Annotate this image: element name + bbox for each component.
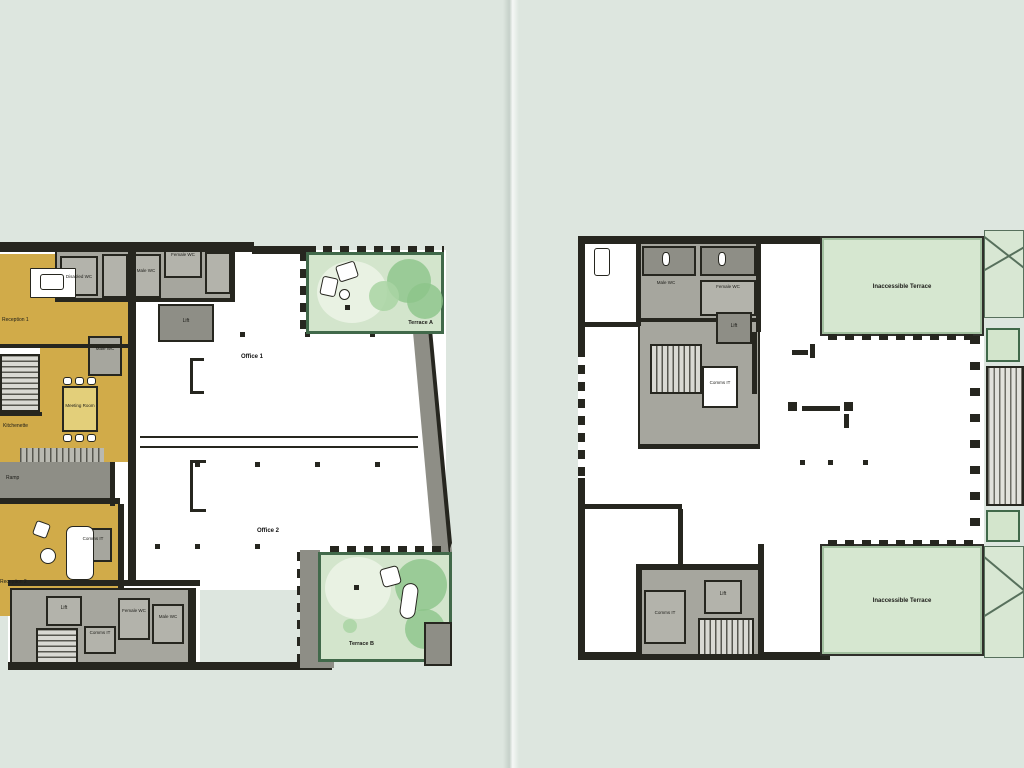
room-label: Kitchenette <box>3 424 28 430</box>
inaccessible-terrace-top: Inaccessible Terrace <box>820 236 984 336</box>
wall <box>230 250 235 300</box>
room-label: Comms IT <box>84 630 116 635</box>
atrium-roof <box>984 546 1024 658</box>
column-dot <box>195 462 200 467</box>
atrium-glazing <box>986 366 1024 506</box>
wall <box>578 236 828 244</box>
wall <box>188 588 196 664</box>
column-dot <box>863 460 868 465</box>
room-label: Meeting Room <box>61 403 99 408</box>
toilet-icon <box>662 252 670 266</box>
sofa-icon <box>66 526 94 580</box>
wall <box>110 462 115 506</box>
room-label: Lift <box>704 592 742 598</box>
room-label: Disabled WC <box>62 274 96 279</box>
room-female-wc-bottom <box>118 598 150 640</box>
plan-body <box>758 332 984 548</box>
column-dot <box>375 462 380 467</box>
atrium-green-band <box>986 328 1020 362</box>
wall <box>582 322 640 327</box>
window-band <box>578 348 585 478</box>
staircase <box>650 344 702 394</box>
wall <box>752 332 757 394</box>
tree-icon <box>369 281 399 311</box>
column <box>844 402 853 411</box>
wall <box>582 504 682 509</box>
office2-label: Office 2 <box>238 528 298 534</box>
wall <box>0 242 254 252</box>
wall-mark <box>844 414 849 428</box>
wall <box>678 509 683 569</box>
terrace-a: Terrace A <box>306 252 444 334</box>
corridor-line <box>140 446 418 448</box>
atrium-roof <box>984 230 1024 318</box>
terrace-b-label: Terrace B <box>349 641 374 647</box>
column-dot <box>354 585 359 590</box>
chair-icon <box>75 434 84 442</box>
window-band <box>828 334 978 340</box>
room-label: Ramp <box>6 476 19 482</box>
room-wc <box>102 254 128 298</box>
reception-table-inner <box>40 274 64 290</box>
room-label: Female WC <box>706 284 750 289</box>
room-label: Female WC <box>166 252 200 257</box>
wall-mark <box>802 406 840 411</box>
column-dot <box>195 544 200 549</box>
room-label: Lift <box>158 319 214 325</box>
room-label: Reception 1 <box>2 318 29 324</box>
room-label: Male WC <box>152 614 184 619</box>
column-dot <box>240 332 245 337</box>
room-label: Female WC <box>118 608 150 613</box>
tree-icon <box>407 283 443 319</box>
room-male-wc-mid <box>88 336 122 376</box>
terrace-step <box>424 622 452 666</box>
room-label: Comms IT <box>644 610 686 615</box>
column-dot <box>828 460 833 465</box>
room-wc <box>205 252 231 294</box>
terrace-label: Inaccessible Terrace <box>822 284 982 291</box>
terrace-label: Inaccessible Terrace <box>822 598 982 605</box>
room-label: Reception 2 <box>0 580 27 586</box>
column-dot <box>315 462 320 467</box>
tree-icon <box>343 619 357 633</box>
column-dot <box>255 462 260 467</box>
meeting-table <box>62 386 98 432</box>
wall-bracket <box>190 509 206 512</box>
furniture-icon <box>339 289 350 300</box>
toilet-icon <box>718 252 726 266</box>
room-comms-it <box>702 366 738 408</box>
wall-bracket <box>190 460 193 512</box>
wc-stalls <box>700 246 756 276</box>
room-comms-bottom <box>644 590 686 644</box>
chair-icon <box>87 377 96 385</box>
office1-label: Office 1 <box>222 354 282 360</box>
chair-icon <box>63 434 72 442</box>
floor-plan-right: Inaccessible Terrace Inaccessible Terrac… <box>578 228 1024 670</box>
room-label: Lift <box>716 324 752 330</box>
wall <box>118 504 124 588</box>
page-background: Terrace A Terrace B Reception 1 Disabled… <box>0 0 1024 768</box>
wall <box>636 242 641 326</box>
wall-mark <box>792 350 808 355</box>
wall <box>8 662 332 670</box>
window-mullions <box>970 336 980 542</box>
wall <box>0 412 42 416</box>
window-band <box>828 540 978 546</box>
room-label: Male WC <box>644 280 688 285</box>
column-dot <box>155 544 160 549</box>
chair-icon <box>75 377 84 385</box>
column-dot <box>800 460 805 465</box>
wall-bracket <box>190 358 193 394</box>
staircase <box>0 354 40 412</box>
room-male-wc-bottom <box>152 604 184 644</box>
room-label: Male WC <box>89 346 121 351</box>
table-icon <box>40 548 56 564</box>
staircase <box>698 618 754 656</box>
column-dot <box>255 544 260 549</box>
wall-mark <box>810 344 815 358</box>
staircase <box>36 628 78 664</box>
column-dot <box>345 305 350 310</box>
room-label: Lift <box>46 606 82 612</box>
wall <box>638 444 760 449</box>
atrium-green-band <box>986 510 1020 542</box>
terrace-a-label: Terrace A <box>408 320 433 326</box>
room-label: Comms IT <box>702 380 738 385</box>
wall-bracket <box>190 358 204 361</box>
wall-bracket <box>190 391 204 394</box>
inaccessible-terrace-bottom: Inaccessible Terrace <box>820 544 984 656</box>
floor-plan-left: Terrace A Terrace B Reception 1 Disabled… <box>0 236 462 672</box>
page-seam <box>503 0 519 768</box>
wall <box>55 298 235 302</box>
chair-icon <box>87 434 96 442</box>
room-label: Male WC <box>131 268 161 273</box>
fixture-icon <box>594 248 610 276</box>
wall <box>756 242 761 332</box>
room-label: Comms IT <box>76 536 110 541</box>
column <box>788 402 797 411</box>
ramp-hatching <box>20 448 104 462</box>
wall <box>0 498 120 504</box>
wall <box>8 580 200 586</box>
corridor-line <box>140 436 418 438</box>
chair-icon <box>63 377 72 385</box>
